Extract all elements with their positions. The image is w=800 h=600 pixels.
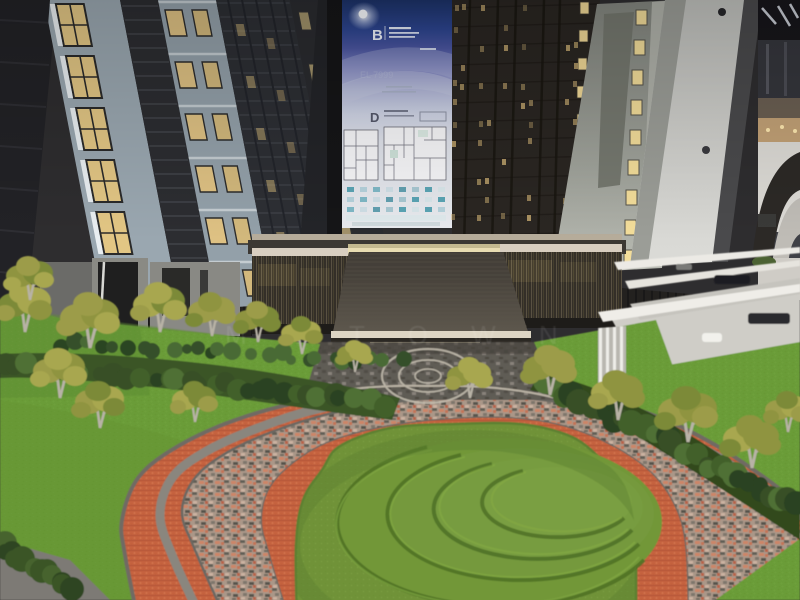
svg-text:EL 7999: EL 7999 <box>360 70 393 80</box>
svg-text:B: B <box>372 27 383 44</box>
svg-text:D: D <box>370 110 379 125</box>
